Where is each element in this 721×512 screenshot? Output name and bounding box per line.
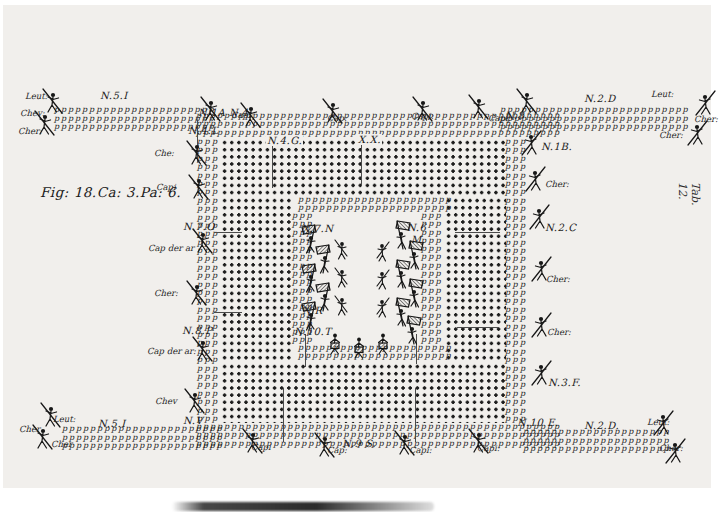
unit-label: N.9 S. — [342, 438, 376, 449]
pike-block-top — [220, 138, 506, 196]
division-line-vertical — [305, 334, 306, 367]
soldier-figure — [372, 238, 392, 264]
officer-label: Cap der ar — [148, 243, 194, 253]
unit-label: N.3.F. — [548, 377, 581, 388]
unit-label: N.10 E. — [517, 417, 559, 428]
courtyard-top-fringe: pppppppppppppppppppppppppppppppppppppppp… — [298, 196, 452, 212]
division-line-horizontal — [214, 312, 242, 313]
unit-label: N.1B. — [541, 141, 572, 152]
officer-label: Capi: — [477, 443, 500, 453]
officer-label: Chev — [155, 396, 177, 406]
officer-label: Chev: — [20, 108, 45, 118]
officer-label: Leut: — [647, 417, 669, 427]
officer-label: Leut: — [25, 91, 47, 101]
soldier-figure — [372, 266, 392, 292]
officer-label: Cher: — [154, 288, 178, 298]
division-line-horizontal — [457, 327, 499, 328]
officer-figure — [184, 138, 210, 168]
officer-label: Capi: — [411, 111, 434, 121]
soldier-figure — [332, 292, 352, 318]
scan-margin-right — [711, 0, 721, 512]
drummer-figure — [372, 330, 396, 356]
officer-label: Cher: — [694, 114, 718, 124]
unit-label: N.7.O — [183, 221, 215, 232]
officer-label: Cher: — [545, 179, 569, 189]
unit-label: N.2.D — [584, 93, 616, 104]
officer-label: Cher: — [18, 126, 42, 136]
officer-label: Capi: — [231, 110, 254, 120]
officer-label: Capi — [251, 442, 271, 452]
division-line-vertical — [361, 138, 362, 186]
officer-label: Cher — [19, 424, 40, 434]
pike-block-bottom — [220, 362, 506, 423]
officer-label: Capi — [156, 182, 176, 192]
division-line-horizontal — [455, 232, 500, 233]
scan-edge-shadow — [172, 502, 434, 511]
unit-label: N.8.P — [182, 325, 213, 336]
officer-label: Capi: — [488, 113, 511, 123]
unit-label: N.R — [302, 305, 323, 316]
soldier-figure — [372, 294, 392, 320]
unit-label: X.X. — [357, 134, 382, 145]
officer-figure — [186, 172, 212, 202]
division-line-horizontal — [214, 232, 242, 233]
ensign-figure — [399, 313, 425, 347]
unit-label: N.2.C — [545, 222, 576, 233]
officer-figure — [182, 386, 208, 416]
officer-label: Cher: — [546, 274, 570, 284]
unit-label: N.10.T — [294, 326, 331, 337]
officer-label: Leut: — [53, 414, 75, 424]
officer-label: Cher — [51, 439, 72, 449]
unit-label: N.4.G. — [266, 135, 303, 146]
scan-margin-left — [0, 0, 3, 512]
soldier-figure — [332, 264, 352, 290]
officer-label: Cap: — [327, 445, 347, 455]
unit-label: N.4.L — [188, 125, 218, 136]
officer-label: Cher: — [547, 327, 571, 337]
officer-label: Leut: — [651, 89, 673, 99]
division-line-vertical — [272, 140, 273, 188]
officer-label: Cher: — [659, 130, 683, 140]
officer-label: Cap: — [327, 113, 347, 123]
unit-label: N.5.I — [98, 418, 126, 429]
soldier-figure — [332, 236, 352, 262]
unit-label: N.2.D. — [584, 420, 619, 431]
drummer-figure — [348, 334, 372, 360]
division-line-vertical — [283, 388, 284, 442]
unit-label: N.6 — [407, 222, 426, 233]
unit-label: N.7.N — [301, 223, 334, 234]
scan-margin-top — [0, 0, 721, 5]
officer-label: Cap der ar: — [147, 346, 196, 356]
musketeer-rank: ppp — [292, 336, 314, 344]
officer-label: Capi: — [409, 445, 432, 455]
unit-label: M. — [411, 234, 426, 245]
engraving-plate: Fig: 18.Ca: 3.Pa: 6. Tab. 12. N.5.IN.1A … — [0, 0, 721, 512]
unit-label: N.5.I — [100, 90, 128, 101]
pike-block-right — [444, 196, 506, 362]
officer-label: Cher: — [659, 443, 683, 453]
officer-figure — [184, 278, 210, 308]
officer-label: Che: — [154, 148, 174, 158]
plate-number: Tab. 12. — [676, 182, 702, 206]
unit-label: N.V — [183, 415, 203, 426]
pike-block-left — [220, 196, 292, 362]
